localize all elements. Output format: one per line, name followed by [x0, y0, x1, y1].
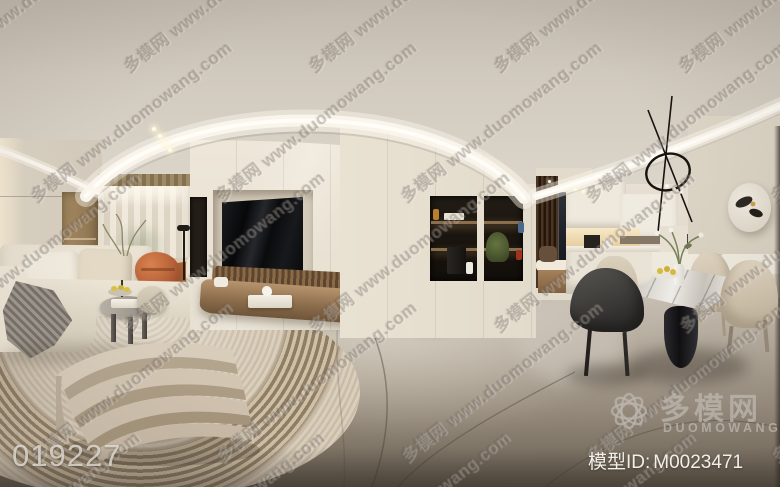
model-id-label: 模型ID:: [588, 452, 650, 473]
model-id-text: 模型ID:M0023471: [588, 447, 746, 474]
watermark-text: 多模网 www.duomowang.com: [0, 164, 145, 337]
flower-knot-icon: [606, 388, 652, 434]
model-id-value: M0023471: [653, 452, 743, 473]
scene-id-text: 019227: [12, 438, 121, 474]
brand-name-en: DUOMOWANG: [663, 421, 780, 435]
panorama-screenshot: 多模网 www.duomowang.com多模网 www.duomowang.c…: [0, 0, 780, 487]
